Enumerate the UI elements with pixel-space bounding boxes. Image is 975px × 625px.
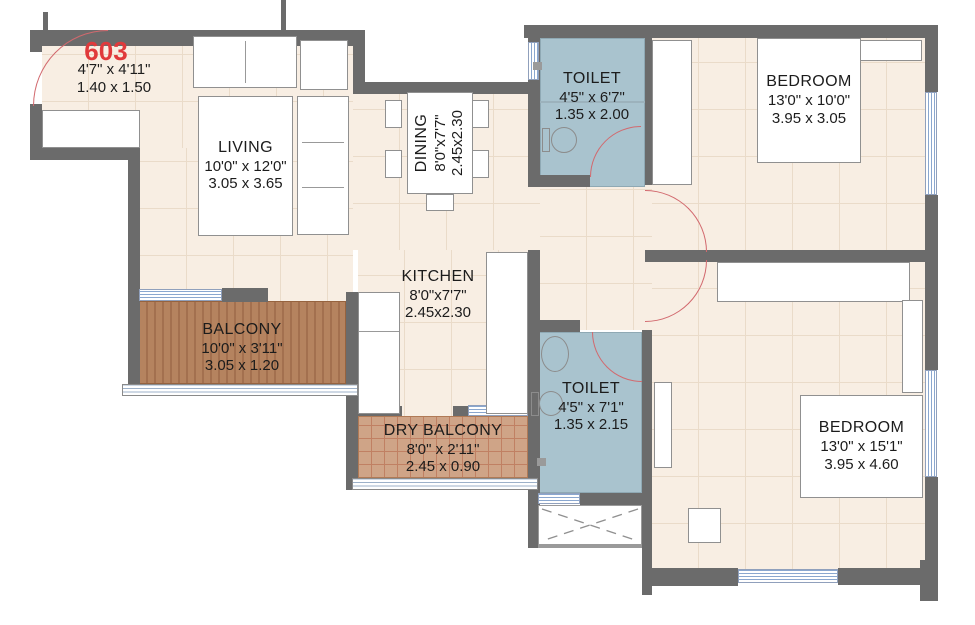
toilet-bottom-name: TOILET bbox=[562, 380, 620, 399]
wall-toilet-top-bottom bbox=[528, 175, 590, 187]
wall-stub bbox=[281, 0, 286, 30]
wall-bedroom-bottom-a bbox=[652, 568, 738, 586]
floor-passage bbox=[540, 185, 652, 330]
toilet-top-label: TOILET 4'5" x 6'7" 1.35 x 2.00 bbox=[538, 68, 646, 126]
wc-tank-icon bbox=[542, 128, 550, 152]
window-bedroom-top bbox=[925, 92, 937, 195]
wall-bedroom-bottom-b bbox=[838, 568, 925, 585]
window-bedroom-bottom bbox=[738, 569, 838, 583]
shower-head-icon bbox=[537, 458, 546, 466]
dining-dims-ft: 8'0"x7'7" bbox=[432, 114, 450, 171]
window-balcony-door bbox=[139, 289, 222, 301]
bedroom-top-label-box: BEDROOM 13'0" x 10'0" 3.95 x 3.05 bbox=[757, 38, 861, 163]
dry-balcony-dims-ft: 8'0" x 2'11" bbox=[407, 441, 480, 459]
balcony-dims-ft: 10'0" x 3'11" bbox=[201, 340, 282, 358]
wall-living-left bbox=[128, 148, 140, 384]
unit-dimensions: 4'7" x 4'11" 1.40 x 1.50 bbox=[40, 60, 188, 98]
dresser-bedroom-top bbox=[860, 40, 922, 61]
balcony-dims-m: 3.05 x 1.20 bbox=[205, 357, 279, 375]
kitchen-name: KITCHEN bbox=[401, 268, 474, 287]
wall-left-upper bbox=[30, 30, 42, 52]
toilet-bottom-dims-ft: 4'5" x 7'1" bbox=[558, 399, 624, 417]
shoe-cabinet bbox=[42, 110, 140, 148]
unit-dims-m: 1.40 x 1.50 bbox=[77, 79, 151, 97]
toilet-top-dims-ft: 4'5" x 6'7" bbox=[559, 89, 625, 107]
service-duct bbox=[538, 505, 642, 545]
bedroom-top-name: BEDROOM bbox=[766, 73, 851, 92]
sofa-side bbox=[297, 96, 349, 235]
dry-balcony-dims-m: 2.45 x 0.90 bbox=[406, 458, 480, 476]
wall-toilet-bedroom-divider bbox=[645, 28, 652, 185]
bedroom-top-dims-m: 3.95 x 3.05 bbox=[772, 110, 846, 128]
dresser-bedroom-bottom bbox=[902, 300, 923, 393]
dry-balcony-name: DRY BALCONY bbox=[384, 422, 503, 441]
unit-dims-ft: 4'7" x 4'11" bbox=[78, 61, 151, 79]
wardrobe-bedroom-bottom bbox=[717, 262, 910, 302]
living-dims-ft: 10'0" x 12'0" bbox=[204, 158, 286, 176]
floor-plan: 603 4'7" x 4'11" 1.40 x 1.50 LIVING 10'0… bbox=[0, 0, 975, 625]
dining-label: DINING 8'0"x7'7" 2.45x2.30 bbox=[400, 91, 480, 195]
wall-balcony-top-seg bbox=[222, 288, 268, 302]
toilet-bottom-dims-m: 1.35 x 2.15 bbox=[554, 416, 628, 434]
wall-right-a bbox=[925, 25, 938, 92]
sofa-main bbox=[193, 36, 297, 88]
bedroom-bottom-dims-ft: 13'0" x 15'1" bbox=[820, 438, 902, 456]
side-table bbox=[300, 40, 348, 90]
toilet-top-name: TOILET bbox=[563, 70, 621, 89]
dining-chair bbox=[426, 194, 454, 211]
wall-foyer-bottom bbox=[30, 148, 140, 160]
wall-passage-right bbox=[642, 330, 652, 595]
living-name: LIVING bbox=[218, 139, 273, 158]
window-toilet-bottom bbox=[538, 493, 580, 504]
sink-icon bbox=[541, 336, 569, 372]
dry-balcony-label: DRY BALCONY 8'0" x 2'11" 2.45 x 0.90 bbox=[361, 420, 525, 478]
kitchen-label: KITCHEN 8'0"x7'7" 2.45x2.30 bbox=[358, 266, 518, 324]
duct-hatch-icon bbox=[539, 506, 641, 544]
kitchen-dims-m: 2.45x2.30 bbox=[405, 304, 471, 322]
bedroom-bottom-label-box: BEDROOM 13'0" x 15'1" 3.95 x 4.60 bbox=[800, 395, 923, 498]
bedroom-bottom-name: BEDROOM bbox=[819, 419, 904, 438]
wall-corner-bottom-right bbox=[920, 560, 938, 601]
wardrobe-bedroom-top bbox=[652, 40, 692, 185]
dining-dims-m: 2.45x2.30 bbox=[449, 110, 467, 176]
wall-toilet-bottom-stub bbox=[580, 493, 645, 505]
wall-toilet-bottom-top bbox=[528, 320, 580, 332]
living-dims-m: 3.05 x 3.65 bbox=[208, 175, 282, 193]
wall-top-right bbox=[524, 25, 938, 38]
toilet-top-dims-m: 1.35 x 2.00 bbox=[555, 106, 629, 124]
bedroom-bottom-dims-m: 3.95 x 4.60 bbox=[824, 456, 898, 474]
wall-stub bbox=[43, 12, 48, 30]
balcony-label: BALCONY 10'0" x 3'11" 3.05 x 1.20 bbox=[142, 318, 342, 378]
railing-balcony bbox=[122, 384, 358, 396]
wall-right-b bbox=[925, 195, 938, 370]
nightstand-bedroom-bottom bbox=[688, 508, 721, 543]
balcony-name: BALCONY bbox=[202, 321, 281, 340]
bedroom-top-dims-ft: 13'0" x 10'0" bbox=[768, 92, 850, 110]
railing-dry-balcony bbox=[352, 478, 538, 490]
living-label-box: LIVING 10'0" x 12'0" 3.05 x 3.65 bbox=[198, 96, 293, 236]
toilet-bottom-label: TOILET 4'5" x 7'1" 1.35 x 2.15 bbox=[536, 378, 646, 436]
kitchen-dims-ft: 8'0"x7'7" bbox=[409, 287, 466, 305]
wall-dry-top-stub bbox=[453, 406, 468, 416]
wc-bowl-icon bbox=[551, 127, 577, 153]
desk-bedroom-bottom bbox=[654, 382, 672, 468]
window-bedroom-bottom-right bbox=[925, 370, 937, 477]
dining-name: DINING bbox=[413, 114, 432, 172]
